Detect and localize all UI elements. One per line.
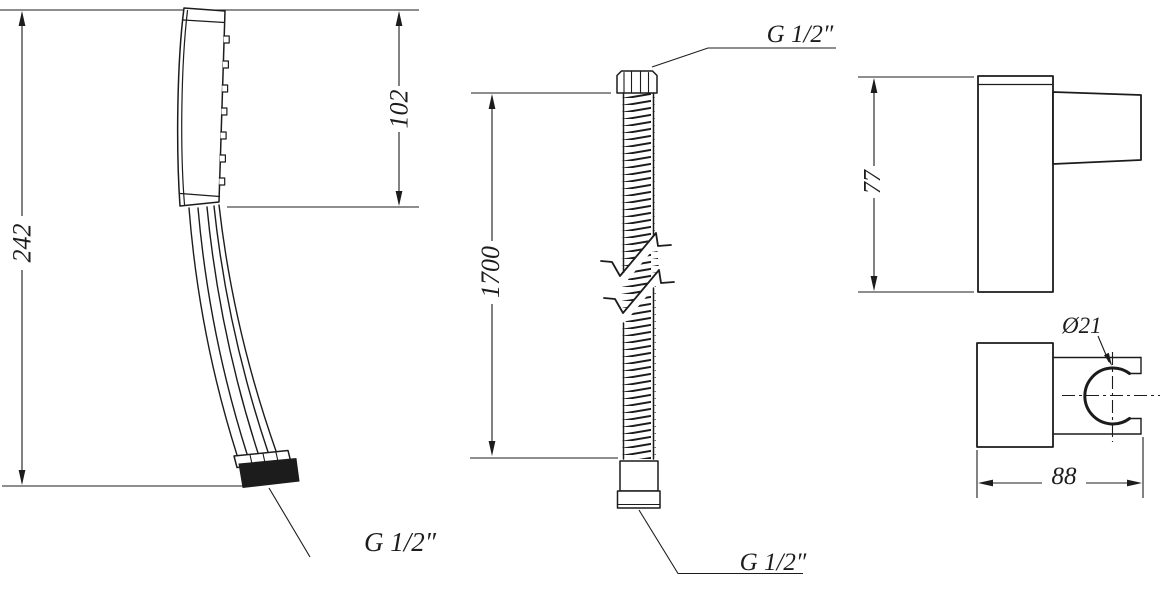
nozzle bbox=[224, 36, 229, 43]
nozzle bbox=[222, 85, 227, 92]
hose-view: 1700 G 1/2″ bbox=[470, 21, 836, 576]
handset-view: 242 102 bbox=[0, 8, 437, 557]
nut-outline bbox=[617, 71, 657, 93]
arrowhead-up bbox=[489, 94, 496, 109]
nozzle bbox=[223, 61, 228, 68]
thread-callout-bottom: G 1/2″ bbox=[639, 510, 807, 576]
hose-thread-bottom-label: G 1/2″ bbox=[740, 549, 807, 576]
tube-upper-ribs bbox=[621, 93, 655, 277]
inlet-connector bbox=[234, 451, 299, 488]
thread-callout-top: G 1/2″ bbox=[652, 21, 836, 67]
arrowhead-right bbox=[1127, 480, 1142, 487]
holder-side-view: 77 bbox=[858, 76, 1141, 292]
holder-arm-side bbox=[1053, 92, 1141, 164]
arrowhead-down bbox=[871, 276, 878, 291]
dim-77: 77 bbox=[858, 77, 974, 292]
clamp-diameter-label: Ø21 bbox=[1061, 313, 1102, 338]
hose-connector-bottom bbox=[618, 461, 661, 508]
nozzle bbox=[220, 155, 225, 162]
leader-line bbox=[652, 48, 836, 67]
arrowhead-up bbox=[19, 11, 26, 26]
arrowhead-down bbox=[396, 191, 403, 206]
dim-242: 242 bbox=[8, 11, 37, 485]
nozzle bbox=[219, 178, 224, 185]
technical-drawing-page: 242 102 bbox=[0, 0, 1172, 604]
dim-242-label: 242 bbox=[8, 224, 37, 263]
inlet-thread-nut bbox=[239, 459, 299, 488]
hose-thread-top-label: G 1/2″ bbox=[767, 21, 834, 48]
connector-band bbox=[618, 491, 661, 508]
arrowhead-left bbox=[978, 480, 993, 487]
tube-lower-ribs bbox=[622, 285, 656, 459]
leader-line bbox=[269, 488, 310, 557]
nozzle bbox=[222, 108, 227, 115]
dim-1700-label: 1700 bbox=[476, 246, 505, 298]
dim-77-label: 77 bbox=[860, 169, 886, 194]
hose-nut-top bbox=[617, 71, 657, 93]
leader-arrowhead bbox=[1104, 353, 1112, 366]
handset-thread-label: G 1/2″ bbox=[364, 527, 437, 557]
arrowhead-down bbox=[489, 441, 496, 456]
arrowhead-up bbox=[396, 11, 403, 26]
dim-1700: 1700 bbox=[476, 94, 505, 456]
arrowhead-up bbox=[871, 78, 878, 93]
arrowhead-down bbox=[19, 470, 26, 485]
connector-sleeve bbox=[620, 461, 658, 491]
drawing-canvas: 242 102 bbox=[0, 0, 1172, 604]
holder-top-view: Ø21 88 bbox=[977, 313, 1160, 498]
nozzle bbox=[221, 132, 226, 139]
dim-102-label: 102 bbox=[385, 90, 414, 129]
dim-102: 102 bbox=[385, 11, 414, 206]
hose-tube bbox=[601, 93, 674, 459]
wall-plate-top bbox=[977, 343, 1053, 447]
handle bbox=[189, 205, 276, 455]
wall-plate-side bbox=[978, 76, 1053, 292]
dim-88-label: 88 bbox=[1052, 463, 1078, 490]
